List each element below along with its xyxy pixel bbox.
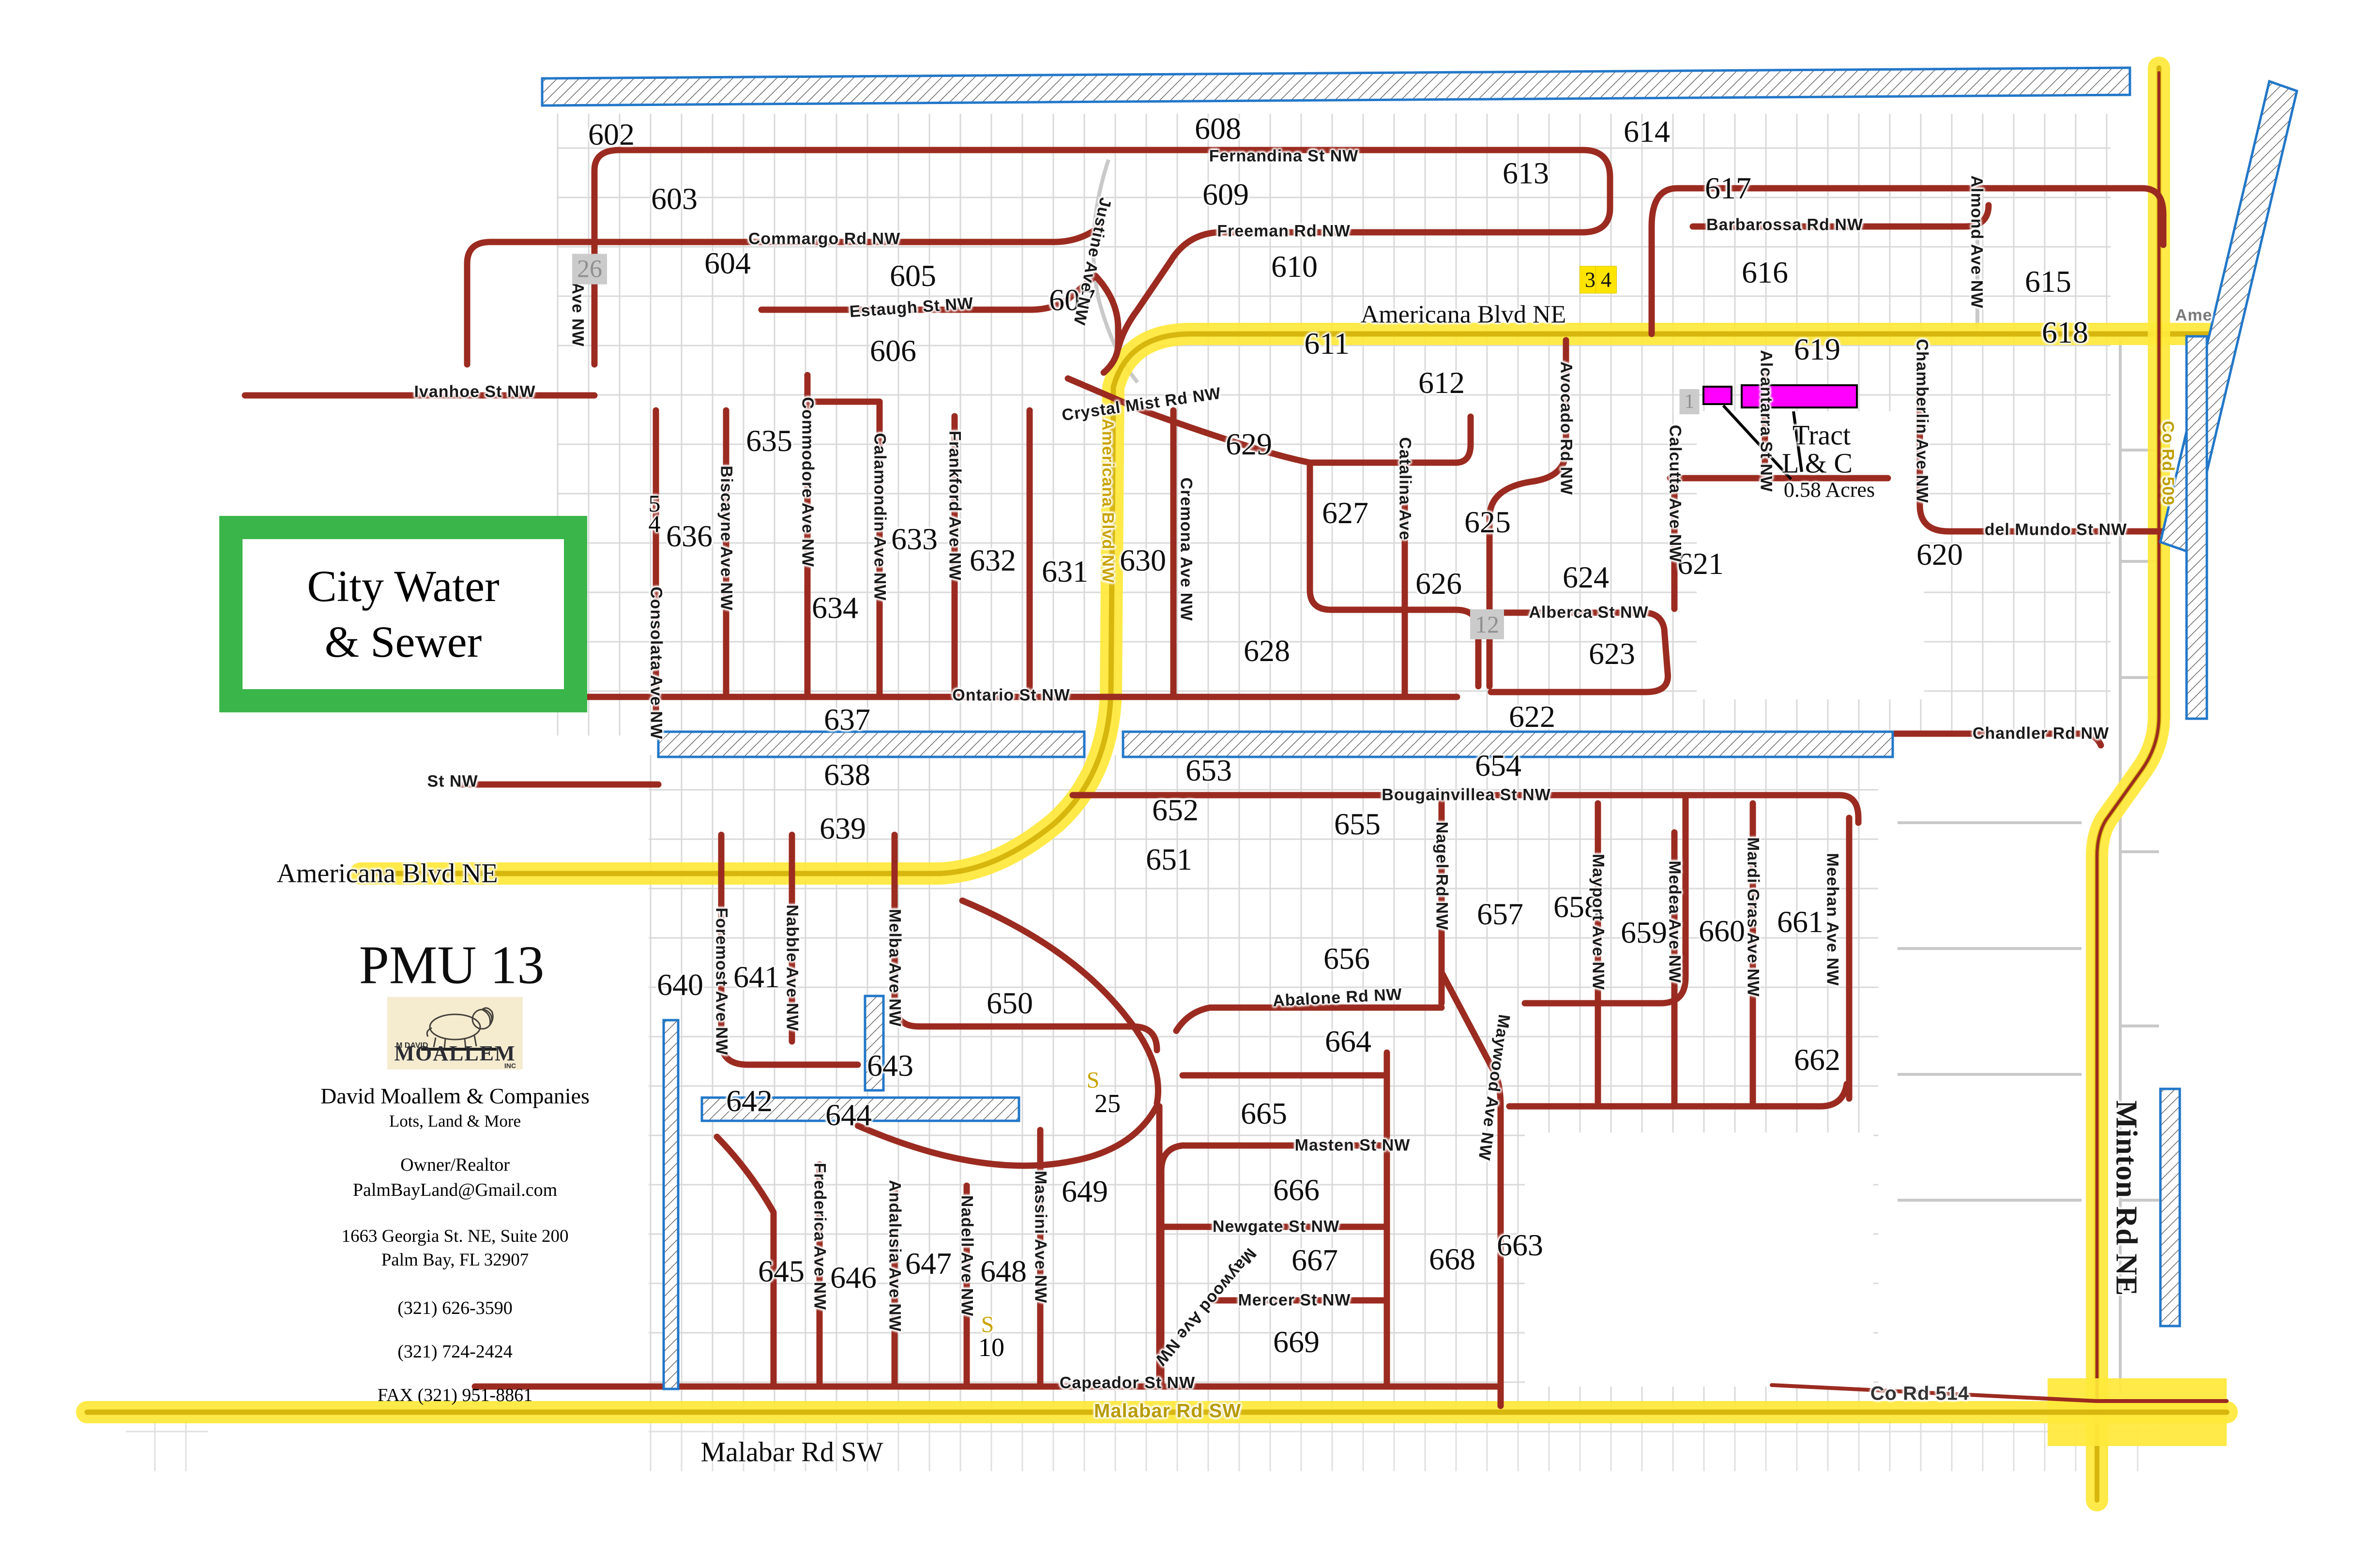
street-label-vertical: Commodore Ave NW [798,397,817,567]
legend-line1: City Water [307,558,499,614]
section-number-622: 622 [1509,699,1555,735]
street-label-vertical: Massini Ave NW [1031,1171,1050,1303]
section-number-604: 604 [704,245,751,281]
street-label: St NW [427,772,478,791]
section-number-625: 625 [1464,504,1511,540]
section-number-647: 647 [905,1246,952,1282]
street-label: Co Rd 514 [1870,1383,1970,1405]
section-number-606: 606 [870,333,916,369]
section-number-652: 652 [1152,792,1199,828]
section-number-646: 646 [830,1260,877,1296]
major-label: PMU 13 [359,935,545,997]
street-label-vertical: Medea Ave NW [1665,860,1684,983]
section-number-605: 605 [890,258,936,294]
street-label-vertical: Americana Blvd NW [1098,419,1117,583]
section-number-609: 609 [1202,177,1249,212]
street-label: Abalone Rd NW [1272,985,1403,1011]
section-number-656: 656 [1323,941,1370,977]
street-label: Alberca St NW [1529,603,1648,622]
street-label: Crystal Mist Rd NW [1061,384,1222,425]
major-label: 0.58 Acres [1784,478,1875,502]
section-number-608: 608 [1195,111,1241,147]
section-number-614: 614 [1624,114,1670,150]
card-tagline: Lots, Land & More [271,1112,639,1131]
section-number-613: 613 [1503,155,1549,191]
major-label: Americana Blvd NE [1361,301,1566,329]
section-number-612: 612 [1418,365,1465,401]
section-number-602: 602 [588,117,635,152]
card-role: Owner/Realtor [271,1154,639,1176]
major-label: Tract [1793,419,1851,452]
card-phone1: (321) 626-3590 [271,1297,639,1319]
card-fax: FAX (321) 951-8861 [271,1385,639,1406]
street-label-vertical: Almond Ave NW [1967,176,1986,309]
section-number-667: 667 [1291,1242,1338,1278]
section-number-616: 616 [1742,255,1788,290]
street-label: Freeman Rd NW [1217,222,1351,241]
street-label-vertical: Cremona Ave NW [1177,478,1196,621]
street-label-vertical: Calcutta Ave NW [1666,425,1685,563]
section-number-631: 631 [1042,554,1088,589]
section-number-657: 657 [1477,896,1523,932]
map-marker-1: 1 [1680,389,1700,414]
street-label: Ame [2175,306,2213,325]
map-marker-25: 25 [1094,1088,1121,1118]
street-label: Masten St NW [1295,1136,1411,1155]
street-label: Estaugh St NW [849,294,974,322]
street-label-vertical: Catalina Ave [1396,437,1414,541]
section-number-663: 663 [1497,1227,1543,1263]
section-number-617: 617 [1705,170,1751,206]
card-address2: Palm Bay, FL 32907 [271,1250,639,1270]
street-label: Bougainvillea St NW [1382,786,1551,805]
section-number-627: 627 [1322,495,1368,531]
street-label: Fernandina St NW [1209,147,1359,166]
card-company: David Moallem & Companies [271,1083,639,1109]
street-label-vertical: Melba Ave NW [885,909,904,1027]
map-marker-4: 4 [649,510,661,538]
street-label-vertical: Co Rd 509 [2158,421,2177,505]
section-number-633: 633 [891,521,938,557]
city-water-sewer-box: City Water & Sewer [219,516,587,712]
street-label-vertical: Frankford Ave NW [945,431,964,581]
section-number-610: 610 [1271,249,1318,285]
street-label: Malabar Rd SW [1094,1401,1241,1422]
section-number-669: 669 [1273,1324,1320,1360]
street-label: Chandler Rd NW [1973,724,2109,743]
section-number-637: 637 [824,702,870,738]
street-label: Ontario St NW [952,686,1070,705]
section-number-649: 649 [1062,1174,1108,1209]
street-label-vertical: Nadell Ave NW [957,1195,976,1316]
section-number-636: 636 [666,518,713,554]
card-email: PalmBayLand@Gmail.com [271,1179,639,1201]
map-marker-10: 10 [978,1332,1004,1362]
section-number-640: 640 [657,967,703,1003]
plat-map: 6026036046056066076086096106116126136146… [0,0,2370,1568]
street-label-vertical: Consolata Ave NW [647,587,666,739]
section-number-635: 635 [746,423,792,459]
section-number-619: 619 [1794,332,1840,367]
section-number-624: 624 [1563,559,1609,595]
section-number-620: 620 [1916,537,1963,573]
broker-card: M DAVID MOALLEM INC David Moallem & Comp… [271,997,639,1406]
street-label-vertical: Calamondin Ave NW [870,433,889,601]
legend-line2: & Sewer [325,614,482,670]
section-number-668: 668 [1429,1241,1475,1277]
street-label-vertical: Chamberlin Ave NW [1913,339,1931,503]
street-label: Barbarossa Rd NW [1706,216,1863,235]
section-number-632: 632 [970,543,1016,578]
street-label-vertical: Alcantarra St NW [1757,350,1776,492]
section-number-654: 654 [1475,748,1521,784]
section-number-655: 655 [1334,806,1381,842]
section-number-618: 618 [2042,315,2088,350]
map-marker-12: 12 [1470,609,1504,639]
street-label: Newgate St NW [1213,1218,1339,1236]
section-number-641: 641 [733,959,780,995]
section-number-645: 645 [758,1253,805,1289]
street-label-vertical: Avocado Rd NW [1557,362,1576,495]
section-number-666: 666 [1273,1172,1320,1208]
section-number-626: 626 [1415,566,1462,602]
card-phone2: (321) 724-2424 [271,1341,639,1362]
section-number-651: 651 [1146,842,1192,877]
section-number-644: 644 [825,1097,872,1133]
section-number-659: 659 [1621,915,1667,950]
section-number-661: 661 [1777,904,1823,940]
section-number-653: 653 [1185,753,1232,788]
card-address1: 1663 Georgia St. NE, Suite 200 [271,1226,639,1247]
section-number-648: 648 [980,1253,1027,1289]
section-number-650: 650 [987,985,1033,1021]
section-number-662: 662 [1794,1042,1840,1078]
street-label-vertical: Minton Rd NE [2109,1101,2143,1297]
section-number-664: 664 [1325,1024,1371,1059]
map-marker-26: 26 [572,254,607,285]
section-number-630: 630 [1120,543,1166,578]
street-label-vertical: Foremost Ave NW [712,907,731,1055]
section-number-643: 643 [867,1048,913,1084]
section-number-623: 623 [1589,636,1635,672]
street-label-vertical: Maywood Ave NW [1474,1013,1514,1162]
major-label: Malabar Rd SW [701,1436,883,1468]
street-label-vertical: Andalusia Ave NW [885,1180,904,1332]
street-label-vertical: Biscayne Ave NW [717,466,736,611]
section-number-615: 615 [2025,264,2071,300]
street-label: Commargo Rd NW [748,230,900,249]
logo-inc: INC [504,1062,516,1070]
major-label: L & C [1782,447,1853,480]
section-number-638: 638 [824,757,870,793]
street-label-vertical: Nabble Ave NW [783,905,802,1031]
section-number-634: 634 [812,590,858,626]
street-label-vertical: Frederica Ave NW [810,1163,829,1310]
section-number-603: 603 [651,181,698,217]
street-label-vertical: Nagel Rd NW [1432,822,1451,930]
section-number-642: 642 [726,1083,773,1119]
street-label-vertical: Mardi Gras Ave NW [1744,837,1762,997]
street-label-vertical: Meehan Ave NW [1823,853,1842,986]
section-number-660: 660 [1699,913,1745,949]
logo-moallem: MOALLEM [387,1041,523,1066]
moallem-logo: M DAVID MOALLEM INC [387,997,523,1070]
map-marker-4: 4 [1595,266,1617,294]
section-number-629: 629 [1226,426,1272,462]
section-number-665: 665 [1241,1096,1287,1131]
section-number-639: 639 [820,811,866,846]
section-number-628: 628 [1244,633,1290,669]
street-label-vertical: Mayport Ave NW [1589,854,1608,990]
major-label: Americana Blvd NE [276,858,498,889]
street-label: del Mundo St NW [1985,521,2127,540]
street-label: Mercer St NW [1238,1291,1351,1310]
street-label: Capeador St NW [1060,1374,1195,1393]
section-number-611: 611 [1304,326,1350,362]
street-label: Ivanhoe St NW [414,383,535,402]
street-label-vertical: Ave NW [568,282,587,347]
